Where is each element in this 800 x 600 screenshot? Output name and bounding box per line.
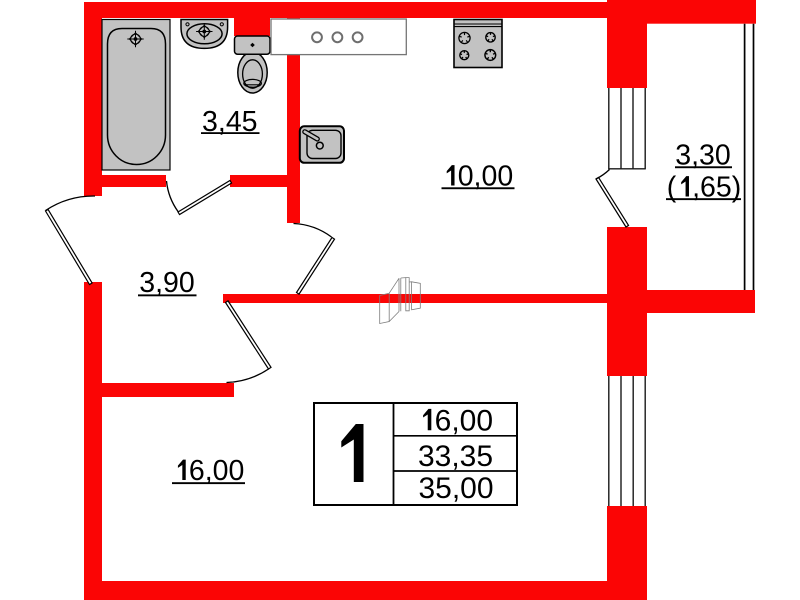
- svg-text:3,90: 3,90: [139, 267, 194, 299]
- svg-text:6,00: 6,00: [435, 404, 493, 437]
- svg-text:35,00: 35,00: [418, 472, 493, 505]
- svg-text:33,35: 33,35: [418, 440, 493, 473]
